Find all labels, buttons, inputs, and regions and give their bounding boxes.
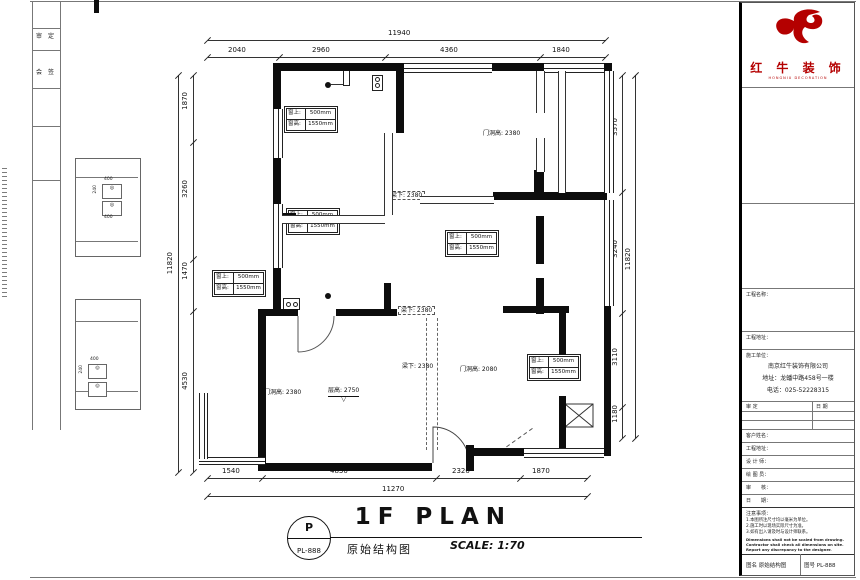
partition-wall xyxy=(420,196,494,204)
beam-height-label: 梁下: 2380 xyxy=(402,364,433,371)
brand-subtitle: HONGNIU DECORATION xyxy=(742,76,854,80)
window-spec-table: 窗上:500mm 窗高:1550mm xyxy=(529,356,579,379)
brand-name: 红 牛 装 饰 xyxy=(742,59,854,76)
dim-tick xyxy=(584,493,591,500)
wall-segment xyxy=(559,396,566,456)
window xyxy=(273,204,283,268)
dim-tick xyxy=(632,72,639,79)
drawing-title: 1F PLAN xyxy=(318,504,512,530)
note-line-en: Report any discrepancy to the designer. xyxy=(746,547,852,552)
wall-segment xyxy=(273,158,281,204)
wall-segment xyxy=(273,63,281,109)
dim-label: 1870 xyxy=(532,468,550,475)
field-label: 设 计 师： xyxy=(746,458,769,465)
wall-segment xyxy=(384,283,391,316)
dim-line-left-total xyxy=(178,75,179,472)
company-label: 施工单位： xyxy=(746,352,771,359)
dim-tick xyxy=(619,189,626,196)
gas-meter-icon xyxy=(372,75,383,91)
hongniu-logo-icon xyxy=(768,8,832,54)
window xyxy=(544,63,604,73)
dim-line-bottom xyxy=(208,478,588,479)
panel-box-icon xyxy=(343,69,350,86)
door-height-label: 门洞高: 2080 xyxy=(460,367,497,374)
window-spec-table: 窗上:500mm 窗高:1550mm xyxy=(286,108,336,131)
badge-number: PL-888 xyxy=(288,547,330,555)
door-height-label: 门洞高: 2380 xyxy=(483,131,520,138)
wall-segment xyxy=(534,170,544,194)
partition-wall xyxy=(536,71,545,113)
note-line: 3.如有出入请及时与设计师联系。 xyxy=(746,529,852,535)
window xyxy=(604,200,614,306)
wall-segment xyxy=(503,306,569,313)
wall-segment xyxy=(466,445,474,471)
dim-label: 4530 xyxy=(182,372,189,390)
electric-meter-icon xyxy=(325,82,331,88)
approval-label: 审 定 xyxy=(746,403,758,410)
dim-label: 2960 xyxy=(312,47,330,54)
wall-segment xyxy=(474,448,524,456)
field-label: 审 核： xyxy=(746,484,771,491)
dim-label: 3110 xyxy=(612,348,619,366)
field-label: 客户姓名： xyxy=(746,432,771,439)
notes-title: 注意事项： xyxy=(746,510,852,517)
company-address: 地址：龙蟠中路458号一楼 xyxy=(742,373,854,382)
beam-height-label: 梁下: 2380 xyxy=(398,306,435,315)
dim-tick xyxy=(619,435,626,442)
partition-wall xyxy=(384,133,393,215)
dim-label: 11820 xyxy=(625,248,632,270)
dim-label: 2040 xyxy=(228,47,246,54)
wall-segment xyxy=(493,192,607,200)
dim-label: 11940 xyxy=(388,30,410,37)
wall-segment xyxy=(273,63,404,71)
sheet-number: 图号 PL-888 xyxy=(804,561,836,569)
project-address-label: 工程地址： xyxy=(746,334,771,341)
dim-tick xyxy=(619,310,626,317)
window xyxy=(524,448,604,458)
field-label: 绘 图 员： xyxy=(746,471,769,478)
dim-tick xyxy=(619,404,626,411)
wall-segment xyxy=(492,63,544,71)
field-label: 日 期： xyxy=(746,497,771,504)
wall-segment xyxy=(604,63,612,71)
wall-segment xyxy=(536,216,544,264)
partition-wall xyxy=(536,138,545,172)
dim-tick xyxy=(632,435,639,442)
wall-segment xyxy=(258,463,432,471)
window-spec-table: 窗上:500mm 窗高:1550mm xyxy=(447,232,497,255)
drawing-sheet: 审 定 会 签 ◎ ◎ 400 240 400 ◎ ◎ 400 240 xyxy=(0,0,860,580)
dim-line-top-total xyxy=(208,40,606,41)
dim-line-left xyxy=(193,75,194,472)
wall-segment xyxy=(258,309,266,471)
dim-label: 1840 xyxy=(552,47,570,54)
floor-plan: 窗上:500mm 窗高:1550mm 窗上:500mm 窗高:1550mm 窗上… xyxy=(0,0,860,580)
dim-line-bottom-total xyxy=(208,496,588,497)
company-name: 南京红牛装饰有限公司 xyxy=(742,361,854,370)
window xyxy=(199,393,208,459)
level-mark-icon: ▽ xyxy=(341,396,346,404)
dim-line-right xyxy=(622,75,623,438)
electric-meter-icon xyxy=(325,293,331,299)
window-spec-table: 窗上:500mm 窗高:1550mm xyxy=(214,272,264,295)
wall-segment xyxy=(396,71,404,133)
dim-label: 1180 xyxy=(612,405,619,423)
dim-label: 1870 xyxy=(182,92,189,110)
field-label: 工程地址： xyxy=(746,445,771,452)
partition-wall xyxy=(282,215,385,224)
date-label: 日 期 xyxy=(816,403,828,410)
company-phone: 电话：025-52228315 xyxy=(742,385,854,394)
window xyxy=(604,71,614,193)
drawing-title-cn: 原始结构图 xyxy=(347,541,412,557)
dim-label: 1470 xyxy=(182,262,189,280)
dim-label: 3260 xyxy=(182,180,189,198)
project-name-label: 工程名称： xyxy=(746,291,771,298)
dim-tick xyxy=(602,37,609,44)
dim-tick xyxy=(619,72,626,79)
wall-segment xyxy=(604,306,611,456)
dim-label: 4360 xyxy=(440,47,458,54)
wall-segment xyxy=(559,313,566,355)
dim-line-top xyxy=(208,57,606,58)
sheet-name: 图名 原始结构图 xyxy=(746,561,786,569)
drawing-scale: SCALE: 1:70 xyxy=(450,539,525,552)
dim-label: 11270 xyxy=(382,486,404,493)
dim-label: 1540 xyxy=(222,468,240,475)
window xyxy=(404,63,492,73)
dim-tick xyxy=(204,493,211,500)
dim-line-right-total xyxy=(635,75,636,438)
partition-wall xyxy=(558,71,566,193)
title-underline xyxy=(330,537,642,538)
dim-label: 11820 xyxy=(167,252,174,274)
dim-tick xyxy=(204,37,211,44)
window xyxy=(199,457,265,465)
window xyxy=(273,109,283,158)
door-height-label: 门洞高: 2380 xyxy=(264,390,301,397)
title-block: 红 牛 装 饰 HONGNIU DECORATION 工程名称： 工程地址： 施… xyxy=(739,2,855,576)
